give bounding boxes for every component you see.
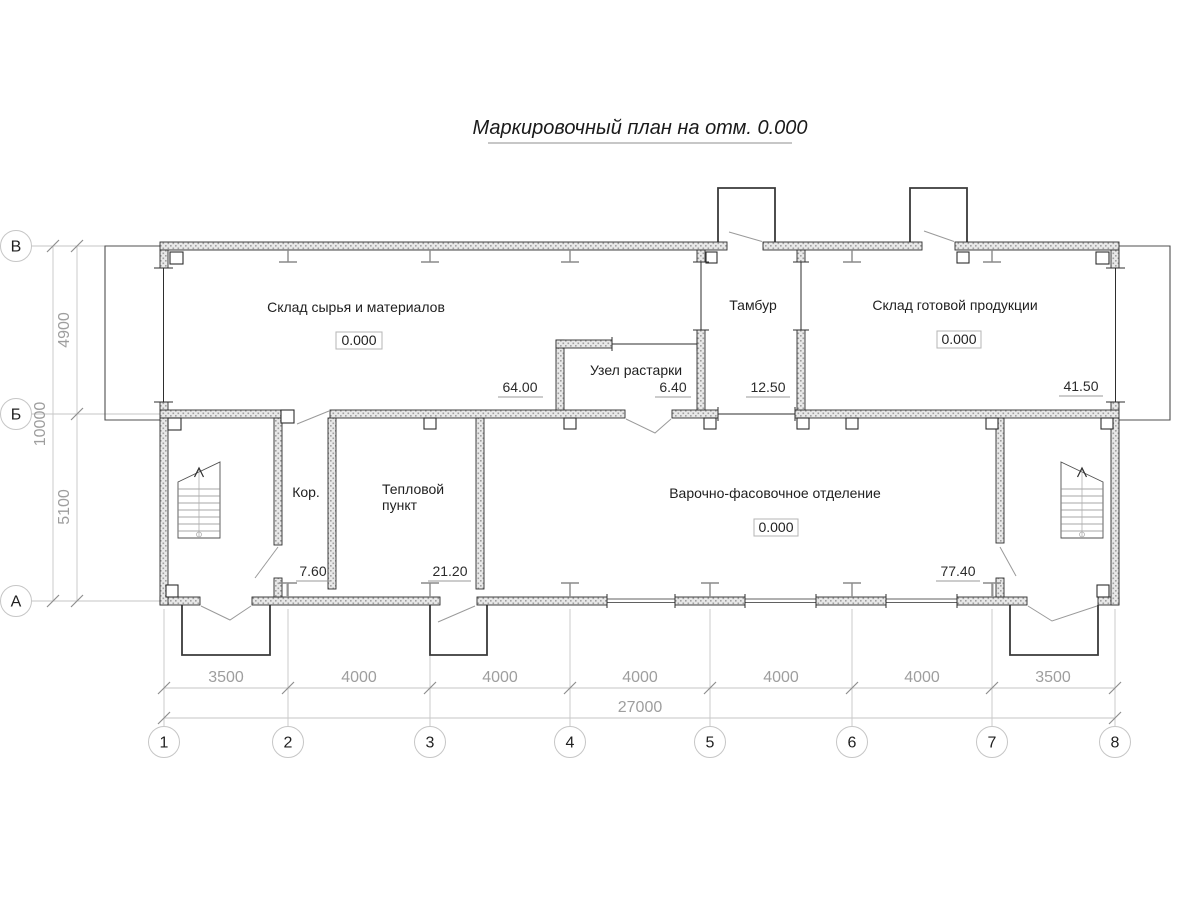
area-vestibule: 12.50: [750, 379, 785, 395]
dim-total-27000: 27000: [618, 699, 663, 716]
axis-label-8: 8: [1111, 735, 1120, 752]
dim-5-6: 4000: [763, 669, 799, 686]
dim-3-4: 4000: [482, 669, 518, 686]
room-label-unpacking: Узел растарки: [590, 362, 682, 378]
axis-label-6: 6: [848, 735, 857, 752]
axis-label-7: 7: [988, 735, 997, 752]
dim-left-total-10000: 10000: [32, 402, 49, 447]
title-block: Маркировочный план на отм. 0.000: [472, 117, 807, 143]
axis-label-3: 3: [426, 735, 435, 752]
room-label-cooking-packing: Варочно-фасовочное отделение: [669, 485, 881, 501]
room-label-vestibule: Тамбур: [729, 297, 777, 313]
elevation-finished-goods: 0.000: [941, 331, 976, 347]
stairs-left: [178, 462, 220, 538]
dim-left-4900: 4900: [56, 312, 73, 348]
axis-grid-bottom: 3500 4000 4000 4000 4000 4000 3500 27000: [158, 609, 1121, 726]
drawing-sheet: Маркировочный план на отм. 0.000 4900 51…: [0, 0, 1200, 900]
drawing-title: Маркировочный план на отм. 0.000: [472, 117, 807, 139]
porch-top-1: [718, 188, 775, 242]
room-labels: Склад сырья и материалов Тамбур Склад го…: [267, 297, 1038, 513]
dim-4-5: 4000: [622, 669, 658, 686]
room-label-heat-point-line2: пункт: [382, 497, 418, 513]
area-finished-goods: 41.50: [1063, 378, 1098, 394]
stairs-right: [1061, 462, 1103, 538]
elevation-cooking-packing: 0.000: [758, 519, 793, 535]
area-raw-materials: 64.00: [502, 379, 537, 395]
area-heat-point: 21.20: [432, 563, 467, 579]
axis-label-v: В: [11, 239, 22, 256]
porch-bottom-3: [1010, 605, 1098, 655]
axis-label-a: А: [11, 594, 22, 611]
dim-1-2: 3500: [208, 669, 244, 686]
porch-bottom-1: [182, 605, 270, 655]
elevation-raw-materials: 0.000: [341, 332, 376, 348]
dim-7-8: 3500: [1035, 669, 1071, 686]
dim-6-7: 4000: [904, 669, 940, 686]
dim-2-3: 4000: [341, 669, 377, 686]
room-label-heat-point-line1: Тепловой: [382, 481, 444, 497]
area-cooking-packing: 77.40: [940, 563, 975, 579]
axis-label-2: 2: [284, 735, 293, 752]
dim-left-5100: 5100: [56, 489, 73, 525]
area-unpacking: 6.40: [659, 379, 686, 395]
room-label-corridor: Кор.: [292, 484, 320, 500]
axis-label-1: 1: [160, 735, 169, 752]
axis-grid-left: 4900 5100 10000: [31, 240, 160, 607]
area-corridor: 7.60: [299, 563, 326, 579]
porch-top-2: [910, 188, 967, 242]
room-label-finished-goods: Склад готовой продукции: [872, 297, 1037, 313]
porch-bottom-2: [430, 605, 487, 655]
axis-label-b: Б: [11, 407, 22, 424]
axis-circles-left: В Б А: [1, 231, 32, 617]
axis-label-4: 4: [566, 735, 575, 752]
room-label-raw-materials: Склад сырья и материалов: [267, 299, 445, 315]
axis-label-5: 5: [706, 735, 715, 752]
platform-left: [105, 246, 160, 420]
loading-platforms: [105, 246, 1170, 420]
floor-plan-canvas: Маркировочный план на отм. 0.000 4900 51…: [0, 0, 1200, 900]
axis-circles-bottom: 1 2 3 4 5 6 7 8: [149, 727, 1131, 758]
platform-right: [1119, 246, 1170, 420]
